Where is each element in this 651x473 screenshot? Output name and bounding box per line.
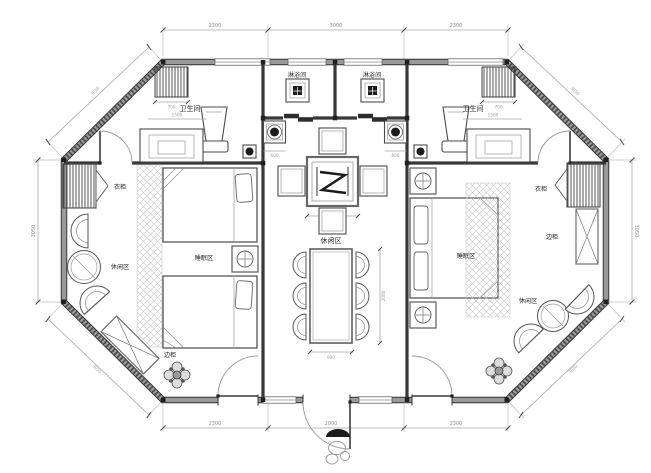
window-top-4 [448, 59, 503, 65]
bathroom-right: 700 1500 卫生间 [414, 67, 572, 165]
sliding-door-right [358, 114, 387, 122]
entrance-statue [326, 429, 350, 464]
toilet-right [442, 107, 470, 152]
dim-diagonal-bottom-right: 3050 [567, 363, 578, 374]
rug-left [137, 165, 162, 347]
dim-right-side: 3050 [633, 225, 639, 238]
rug-right [466, 183, 510, 317]
bedroom-right: 睡眠区 衣柜 边柜 休闲区 [410, 163, 601, 398]
dim-top-right: 2300 [450, 23, 463, 29]
wardrobe-right: 衣柜 [535, 163, 600, 207]
dim-bath-right: 1500 [488, 113, 499, 118]
room-label-sleep-left: 睡眠区 [195, 254, 214, 262]
washbasin-right: 600 [385, 121, 407, 158]
furniture-label-wardrobe-right: 衣柜 [535, 185, 547, 193]
room-label-shower-left: 淋浴间 [288, 71, 307, 79]
side-cabinet-right: 边柜 [546, 209, 598, 264]
floor-drain-left [243, 145, 256, 158]
furniture-label-side-cabinet-left: 边柜 [164, 351, 176, 359]
dim-radiator-right: 700 [495, 105, 503, 110]
washbasin-left: 600 [264, 121, 286, 158]
dim-bath-left: 1500 [172, 113, 183, 118]
bed-left-1 [163, 168, 257, 242]
room-label-lounge-right: 休闲区 [519, 297, 538, 305]
radiator-left: 700 [153, 67, 190, 110]
floor-drain-right [414, 145, 427, 158]
window-top-3 [344, 59, 382, 65]
furniture-label-wardrobe-left: 衣柜 [114, 183, 126, 191]
shower-room-right: 淋浴间 [358, 71, 387, 122]
dim-bottom-left: 2300 [209, 421, 222, 427]
dim-diagonal-top-left: 3050 [89, 85, 100, 96]
window-top-2 [288, 59, 326, 65]
bed-left-2 [163, 276, 257, 348]
dim-bottom-right: 2300 [450, 421, 463, 427]
window-bottom-2 [359, 397, 392, 403]
dim-diagonal-bottom-left: 3050 [91, 363, 102, 374]
corridor-lounge: 600 600 1000 休闲区 [264, 121, 407, 464]
room-label-sleep-right: 睡眠区 [457, 252, 476, 260]
plant-left [164, 362, 190, 388]
room-label-bathroom-right: 卫生间 [463, 104, 484, 113]
room-label-lounge-center: 休闲区 [321, 236, 342, 245]
lounge-left: 休闲区 [68, 214, 130, 314]
nightstand-left [232, 246, 258, 272]
shower-fixture-right [361, 79, 384, 102]
bedroom-left: 衣柜 休闲区 睡眠区 [63, 164, 258, 398]
sliding-door-left [284, 114, 313, 122]
window-bottom-1 [263, 397, 296, 403]
dim-diagonal-top-right: 3050 [569, 85, 580, 96]
room-label-lounge-left: 休闲区 [111, 263, 130, 271]
floor-plan-canvas: 2300 3000 2300 2300 2000 2300 3050 3050 … [0, 0, 651, 473]
dim-dining-width: 900 [327, 355, 335, 360]
dim-basin-left: 600 [271, 153, 279, 158]
bedroom-right-door [412, 356, 454, 398]
shower-fixture-left [286, 79, 309, 102]
dim-top-left: 2300 [209, 23, 222, 29]
dim-bottom-center: 2000 [325, 421, 338, 427]
dim-radiator-left: 700 [168, 105, 176, 110]
furniture-label-side-cabinet-right: 边柜 [546, 233, 558, 241]
radiator-right: 700 [480, 67, 517, 110]
wardrobe-left: 衣柜 [63, 164, 126, 208]
bedroom-left-door [216, 356, 258, 398]
bathroom-right-door [538, 131, 572, 165]
vanity-right [467, 129, 530, 162]
toilet-left [200, 107, 228, 152]
bathroom-left: 700 1500 卫生间 [98, 67, 256, 165]
room-label-bathroom-left: 卫生间 [180, 104, 201, 113]
bathroom-left-door [98, 131, 132, 165]
shower-room-left: 淋浴间 [284, 71, 313, 122]
nightstand-right-2 [410, 302, 436, 328]
dim-left-side: 3050 [31, 225, 37, 238]
dim-dining-length: 2000 [381, 290, 386, 301]
floor-plan-drawing: 2300 3000 2300 2300 2000 2300 3050 3050 … [0, 0, 651, 473]
dim-basin-right: 600 [392, 153, 400, 158]
dining-table: 900 2000 [293, 247, 386, 360]
dim-top-center: 3000 [330, 23, 343, 29]
plant-right [486, 358, 512, 384]
vanity-left [140, 129, 203, 162]
nightstand-right-1 [410, 168, 436, 194]
room-label-shower-right: 淋浴间 [363, 71, 382, 79]
